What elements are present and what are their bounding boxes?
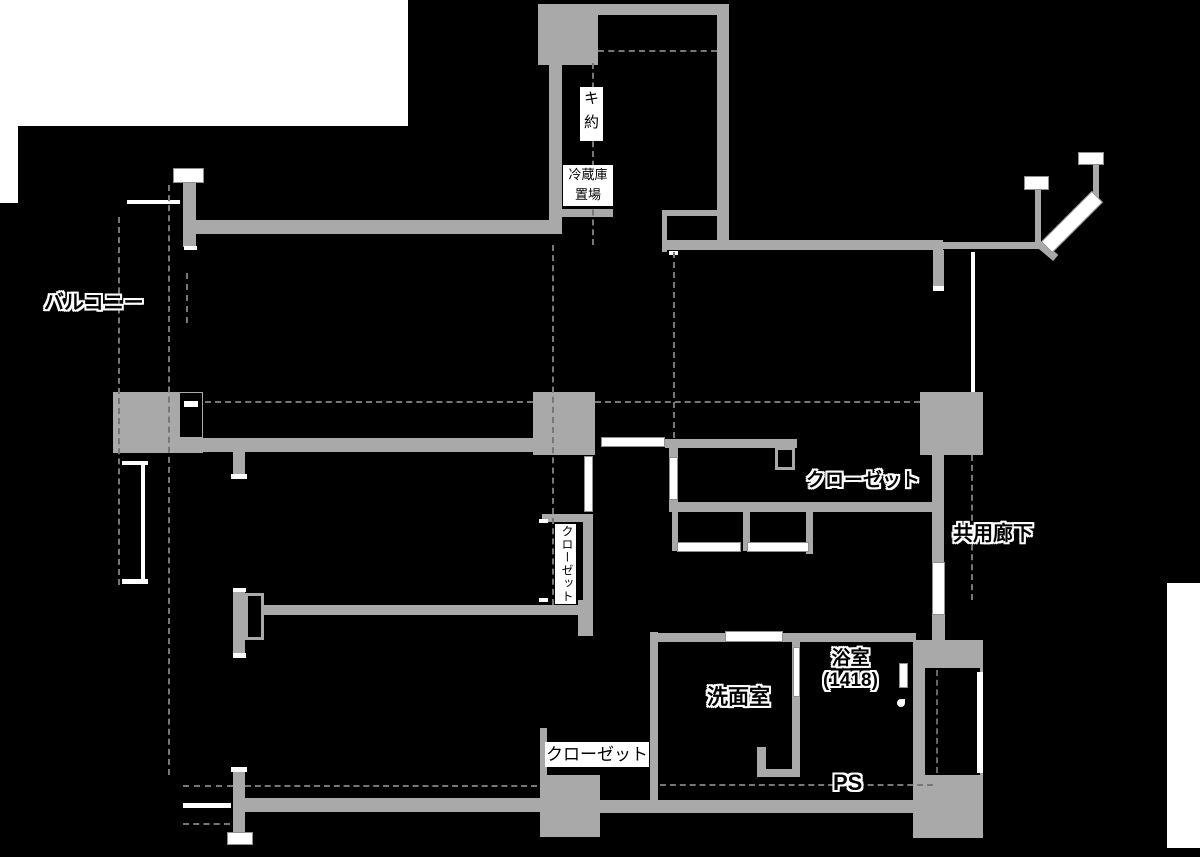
wall-segment	[195, 438, 540, 452]
wall-return-box	[775, 447, 795, 470]
wall-end-cap	[539, 598, 548, 602]
wall-segment	[542, 514, 588, 522]
wall-segment	[549, 209, 613, 217]
wall-segment	[662, 210, 718, 216]
wall-segment	[595, 4, 729, 15]
wall-segment	[245, 798, 540, 812]
label-washroom: 洗面室	[707, 681, 770, 711]
wall-segment	[233, 592, 245, 654]
sliding-door	[677, 542, 741, 552]
dashed-line	[552, 245, 554, 605]
wall-end-cap	[184, 246, 197, 250]
bath-door-handle	[897, 699, 905, 707]
label-bathroom-name: 浴室	[823, 643, 878, 670]
wall-segment	[600, 800, 916, 813]
door-opening	[725, 631, 783, 642]
label-fridge-line2: 置場	[563, 185, 613, 205]
bath-door	[899, 663, 908, 688]
label-balcony: バルコニー	[44, 286, 144, 315]
wall-segment	[798, 633, 916, 642]
wall-segment	[670, 502, 943, 512]
label-kitchen-partial-bottom: 約	[580, 111, 603, 135]
wall-end-cap	[933, 286, 944, 291]
wall-end-cap	[231, 474, 247, 479]
dashed-line	[183, 785, 233, 787]
label-bathroom: 浴室 (1418)	[823, 643, 878, 692]
door-mark	[184, 401, 198, 407]
door-opening	[793, 647, 800, 697]
wall-segment	[233, 771, 245, 832]
meter-box-door	[977, 672, 983, 773]
door-opening	[932, 562, 945, 615]
window-notch	[180, 393, 202, 437]
label-pipe-space: PS	[833, 770, 862, 796]
wall-segment	[583, 514, 593, 613]
wall-end-cap	[231, 767, 247, 772]
dashed-line	[183, 823, 230, 825]
wall-segment	[717, 13, 729, 243]
label-kitchen-partial: キ 約	[580, 87, 603, 141]
wall-segment	[195, 220, 560, 234]
label-closet-bottom: クローゼット	[545, 742, 649, 767]
label-kitchen-partial-top: キ	[580, 87, 603, 111]
dashed-line	[595, 401, 920, 403]
wall-segment	[932, 615, 945, 642]
mask-bottom-strip	[1167, 848, 1200, 857]
label-common-corridor: 共用廊下	[953, 517, 1033, 546]
sliding-door	[747, 542, 809, 552]
dashed-line	[598, 50, 717, 52]
pillar	[538, 4, 598, 65]
wall-segment	[233, 452, 245, 476]
label-fridge-space: 冷蔵庫 置場	[563, 165, 613, 206]
pillar	[540, 775, 600, 837]
meter-box-opening	[925, 668, 980, 775]
pillar	[920, 392, 983, 455]
wall-end-box	[227, 832, 253, 845]
hall-edge-line	[971, 252, 975, 392]
entry-door-sill	[1024, 176, 1049, 190]
wall-end-cap	[539, 519, 548, 523]
door-opening	[584, 456, 593, 512]
balcony-partition	[141, 463, 145, 582]
wall-segment	[662, 240, 943, 250]
label-fridge-line1: 冷蔵庫	[563, 165, 613, 185]
dashed-line	[168, 185, 170, 775]
wall-end-cap	[233, 588, 246, 592]
dashed-line	[245, 785, 537, 787]
label-closet-upper: クローゼット	[806, 465, 920, 492]
wall-segment	[183, 182, 196, 247]
dashed-line	[186, 273, 188, 323]
wall-end-line	[127, 200, 180, 204]
dashed-line	[205, 401, 533, 403]
pillar-cap	[173, 168, 204, 183]
door-pocket-box	[245, 593, 264, 640]
balcony-partition	[122, 461, 148, 465]
dashed-line	[660, 784, 933, 786]
label-bathroom-size: (1418)	[823, 670, 878, 692]
wall-end-cap	[233, 653, 246, 658]
door-opening	[669, 457, 678, 500]
balcony-partition	[122, 579, 148, 584]
dashed-line	[118, 217, 120, 585]
floor-plan-canvas: バルコニー キ 約 冷蔵庫 置場 クローゼット 共用廊下 クローゼット 洗面室 …	[0, 0, 1200, 857]
wall-segment	[263, 605, 588, 615]
door-opening	[601, 437, 665, 447]
door-frame-post	[1035, 190, 1041, 242]
entry-door-sill	[1078, 152, 1104, 165]
wall-segment	[650, 632, 658, 802]
wall-segment	[578, 600, 593, 636]
wall-segment	[932, 455, 944, 562]
wall-segment	[933, 250, 944, 286]
balcony-divider-line	[183, 803, 231, 808]
dashed-line	[936, 670, 938, 773]
pillar	[533, 392, 595, 455]
dashed-line	[673, 252, 675, 438]
label-closet-middle: クローゼット	[555, 524, 576, 604]
wall-segment	[757, 769, 800, 777]
